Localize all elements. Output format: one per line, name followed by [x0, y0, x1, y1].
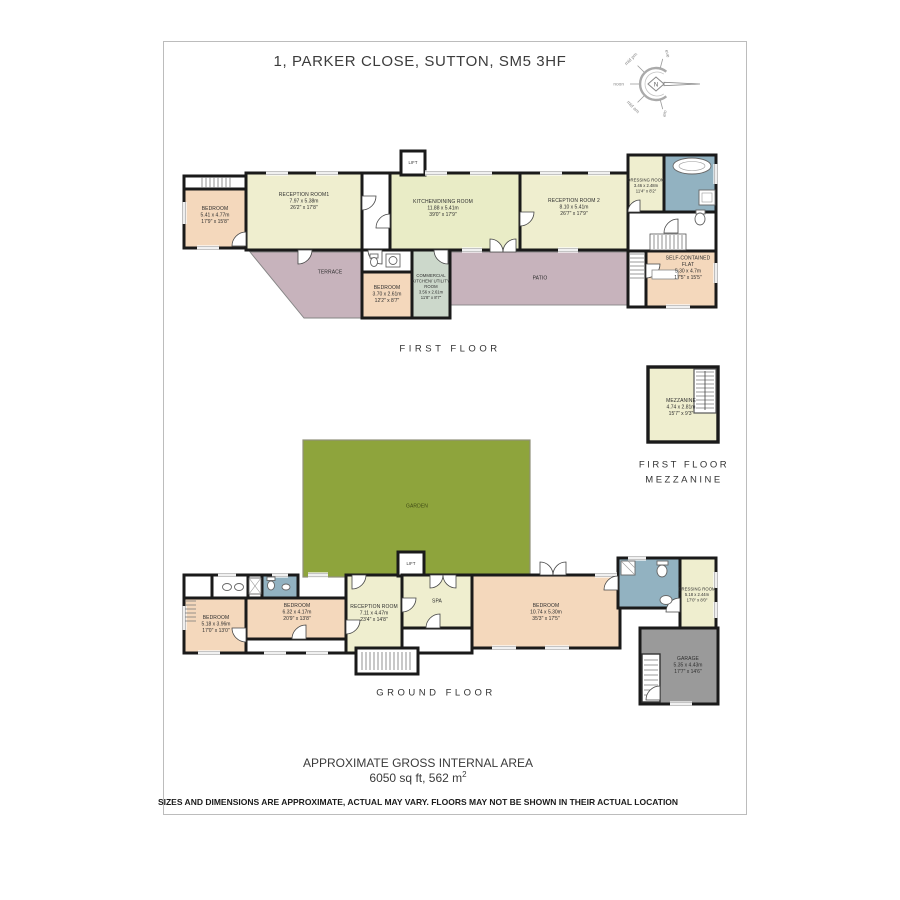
- compass-label-midpm: mid pm: [624, 52, 639, 67]
- page-title: 1, PARKER CLOSE, SUTTON, SM5 3HF: [274, 53, 567, 70]
- mezzanine-caption-line1: FIRST FLOOR: [639, 460, 729, 471]
- ff-bedroom-label: BEDROOM 5.41 x 4.77m 17'9" x 15'8": [201, 205, 230, 225]
- sink-icon: [389, 257, 397, 265]
- area-heading: APPROXIMATE GROSS INTERNAL AREA: [303, 756, 533, 770]
- gf-lift-label: LIFT: [407, 561, 416, 566]
- ff-kitchen-label: KITCHEN/DINING ROOM 11.88 x 5.41m 39'0" …: [413, 198, 473, 218]
- compass-north-letter: N: [654, 83, 658, 89]
- gf-bedroom3-label: BEDROOM 10.74 x 5.30m 35'3" x 17'5": [530, 602, 562, 622]
- gf-dressing-label: DRESSING ROOM 5.18 x 2.44m 17'0" x 8'0": [678, 587, 715, 603]
- compass-label-am: am: [662, 110, 669, 118]
- ff-terrace-label: TERRACE: [318, 269, 343, 276]
- toilet-icon: [695, 213, 705, 225]
- ff-bedroom2-label: BEDROOM 3.70 x 2.61m 12'2" x 8'7": [373, 284, 402, 304]
- ff-reception1-label: RECEPTION ROOM1 7.97 x 5.38m 26'2" x 17'…: [279, 191, 329, 211]
- mezzanine-label: MEZZANINE 4.74 x 2.81m 15'7" x 9'3": [666, 397, 696, 417]
- ff-reception2-label: RECEPTION ROOM 2 8.10 x 5.41m 26'7" x 17…: [548, 197, 600, 217]
- ff-reception1-room: [246, 173, 362, 250]
- compass-rose: eve mid pm noon mid am am N: [613, 49, 700, 117]
- mezzanine-caption-line2: MEZZANINE: [645, 475, 722, 486]
- gf-bedroom2-label: BEDROOM 6.32 x 4.17m 20'9" x 13'8": [283, 602, 312, 622]
- area-superscript: 2: [462, 770, 466, 779]
- area-value: 6050 sq ft, 562 m2: [369, 770, 466, 785]
- gf-reception-label: RECEPTION ROOM 7.11 x 4.47m 23'4" x 14'8…: [350, 603, 398, 623]
- ff-dressing-label: DRESSING ROOM 3.46 x 2.48m 11'4" x 8'2": [627, 178, 664, 194]
- ff-flat-label: SELF-CONTAINED FLAT 5.30 x 4.7m 17'5" x …: [660, 255, 716, 281]
- floorplan-sheet: eve mid pm noon mid am am N 1, PARKER CL…: [0, 0, 900, 900]
- compass-label-noon: noon: [613, 83, 624, 88]
- first-floor-caption: FIRST FLOOR: [399, 344, 500, 355]
- gf-bedroom1-label: BEDROOM 5.18 x 3.96m 17'0" x 13'0": [202, 614, 231, 634]
- ff-patio-label: PATIO: [533, 275, 548, 282]
- ff-lift-label: LIFT: [409, 160, 418, 165]
- disclaimer-text: SIZES AND DIMENSIONS ARE APPROXIMATE, AC…: [158, 797, 678, 807]
- gf-garden-label: GARDEN: [406, 503, 428, 510]
- compass-label-eve: eve: [663, 49, 670, 58]
- gf-spa-label: SPA: [432, 598, 442, 605]
- ff-commercial-label: COMMERCIAL KITCHEN/ UTILITY ROOM 3.56 x …: [412, 273, 451, 300]
- gf-garage-label: GARAGE 5.35 x 4.43m 17'7" x 14'6": [674, 655, 703, 675]
- compass-needle: [664, 82, 700, 85]
- ground-floor-caption: GROUND FLOOR: [376, 688, 496, 699]
